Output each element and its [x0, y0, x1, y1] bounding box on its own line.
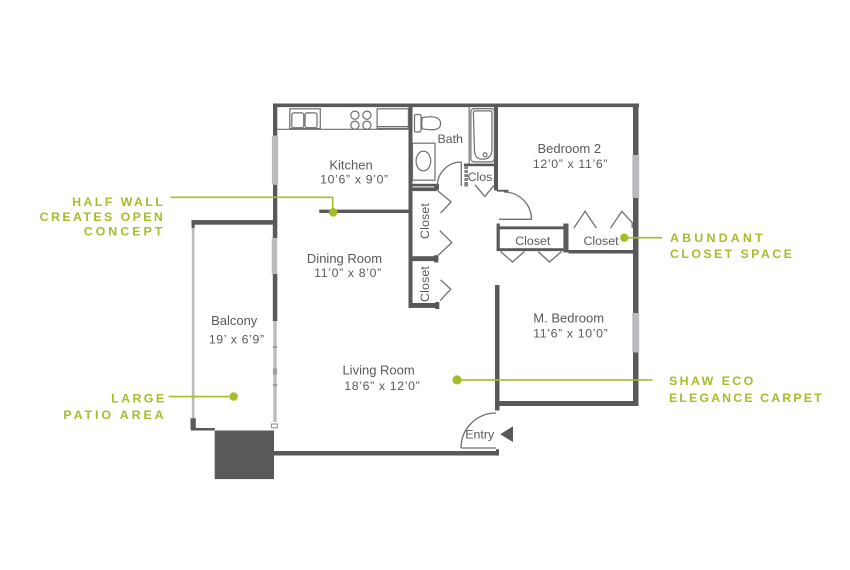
svg-text:Bedroom 2: Bedroom 2 [538, 141, 602, 156]
svg-text:Closet: Closet [418, 203, 432, 239]
svg-text:SHAW ECO: SHAW ECO [669, 374, 756, 388]
svg-text:Balcony: Balcony [211, 313, 258, 328]
svg-text:M. Bedroom: M. Bedroom [533, 311, 604, 326]
svg-text:Living Room: Living Room [342, 363, 414, 378]
svg-text:PATIO AREA: PATIO AREA [63, 408, 166, 422]
svg-text:CREATES OPEN: CREATES OPEN [40, 210, 166, 224]
svg-text:HALF WALL: HALF WALL [72, 195, 165, 209]
svg-text:19’ x 6’9”: 19’ x 6’9” [209, 333, 265, 347]
svg-text:Kitchen: Kitchen [329, 158, 372, 173]
svg-text:Closet: Closet [418, 266, 432, 302]
svg-text:10’6” x 9’0”: 10’6” x 9’0” [320, 173, 389, 187]
svg-text:11’0” x 8’0”: 11’0” x 8’0” [314, 266, 382, 280]
svg-text:11’6” x 10’0”: 11’6” x 10’0” [533, 327, 608, 341]
svg-text:ELEGANCE CARPET: ELEGANCE CARPET [669, 391, 824, 405]
svg-text:ABUNDANT: ABUNDANT [670, 231, 766, 245]
svg-text:18’6” x 12’0”: 18’6” x 12’0” [344, 379, 420, 393]
svg-text:Clos.: Clos. [468, 170, 496, 184]
svg-text:12’0” x 11’6”: 12’0” x 11’6” [533, 157, 608, 171]
svg-text:LARGE: LARGE [111, 391, 166, 405]
svg-text:Closet: Closet [583, 234, 619, 248]
svg-text:Entry: Entry [465, 428, 495, 442]
svg-text:CLOSET SPACE: CLOSET SPACE [670, 247, 794, 261]
svg-text:Closet: Closet [515, 234, 551, 248]
svg-text:Dining Room: Dining Room [307, 251, 382, 266]
svg-text:CONCEPT: CONCEPT [84, 225, 166, 239]
svg-text:Bath: Bath [437, 132, 463, 146]
